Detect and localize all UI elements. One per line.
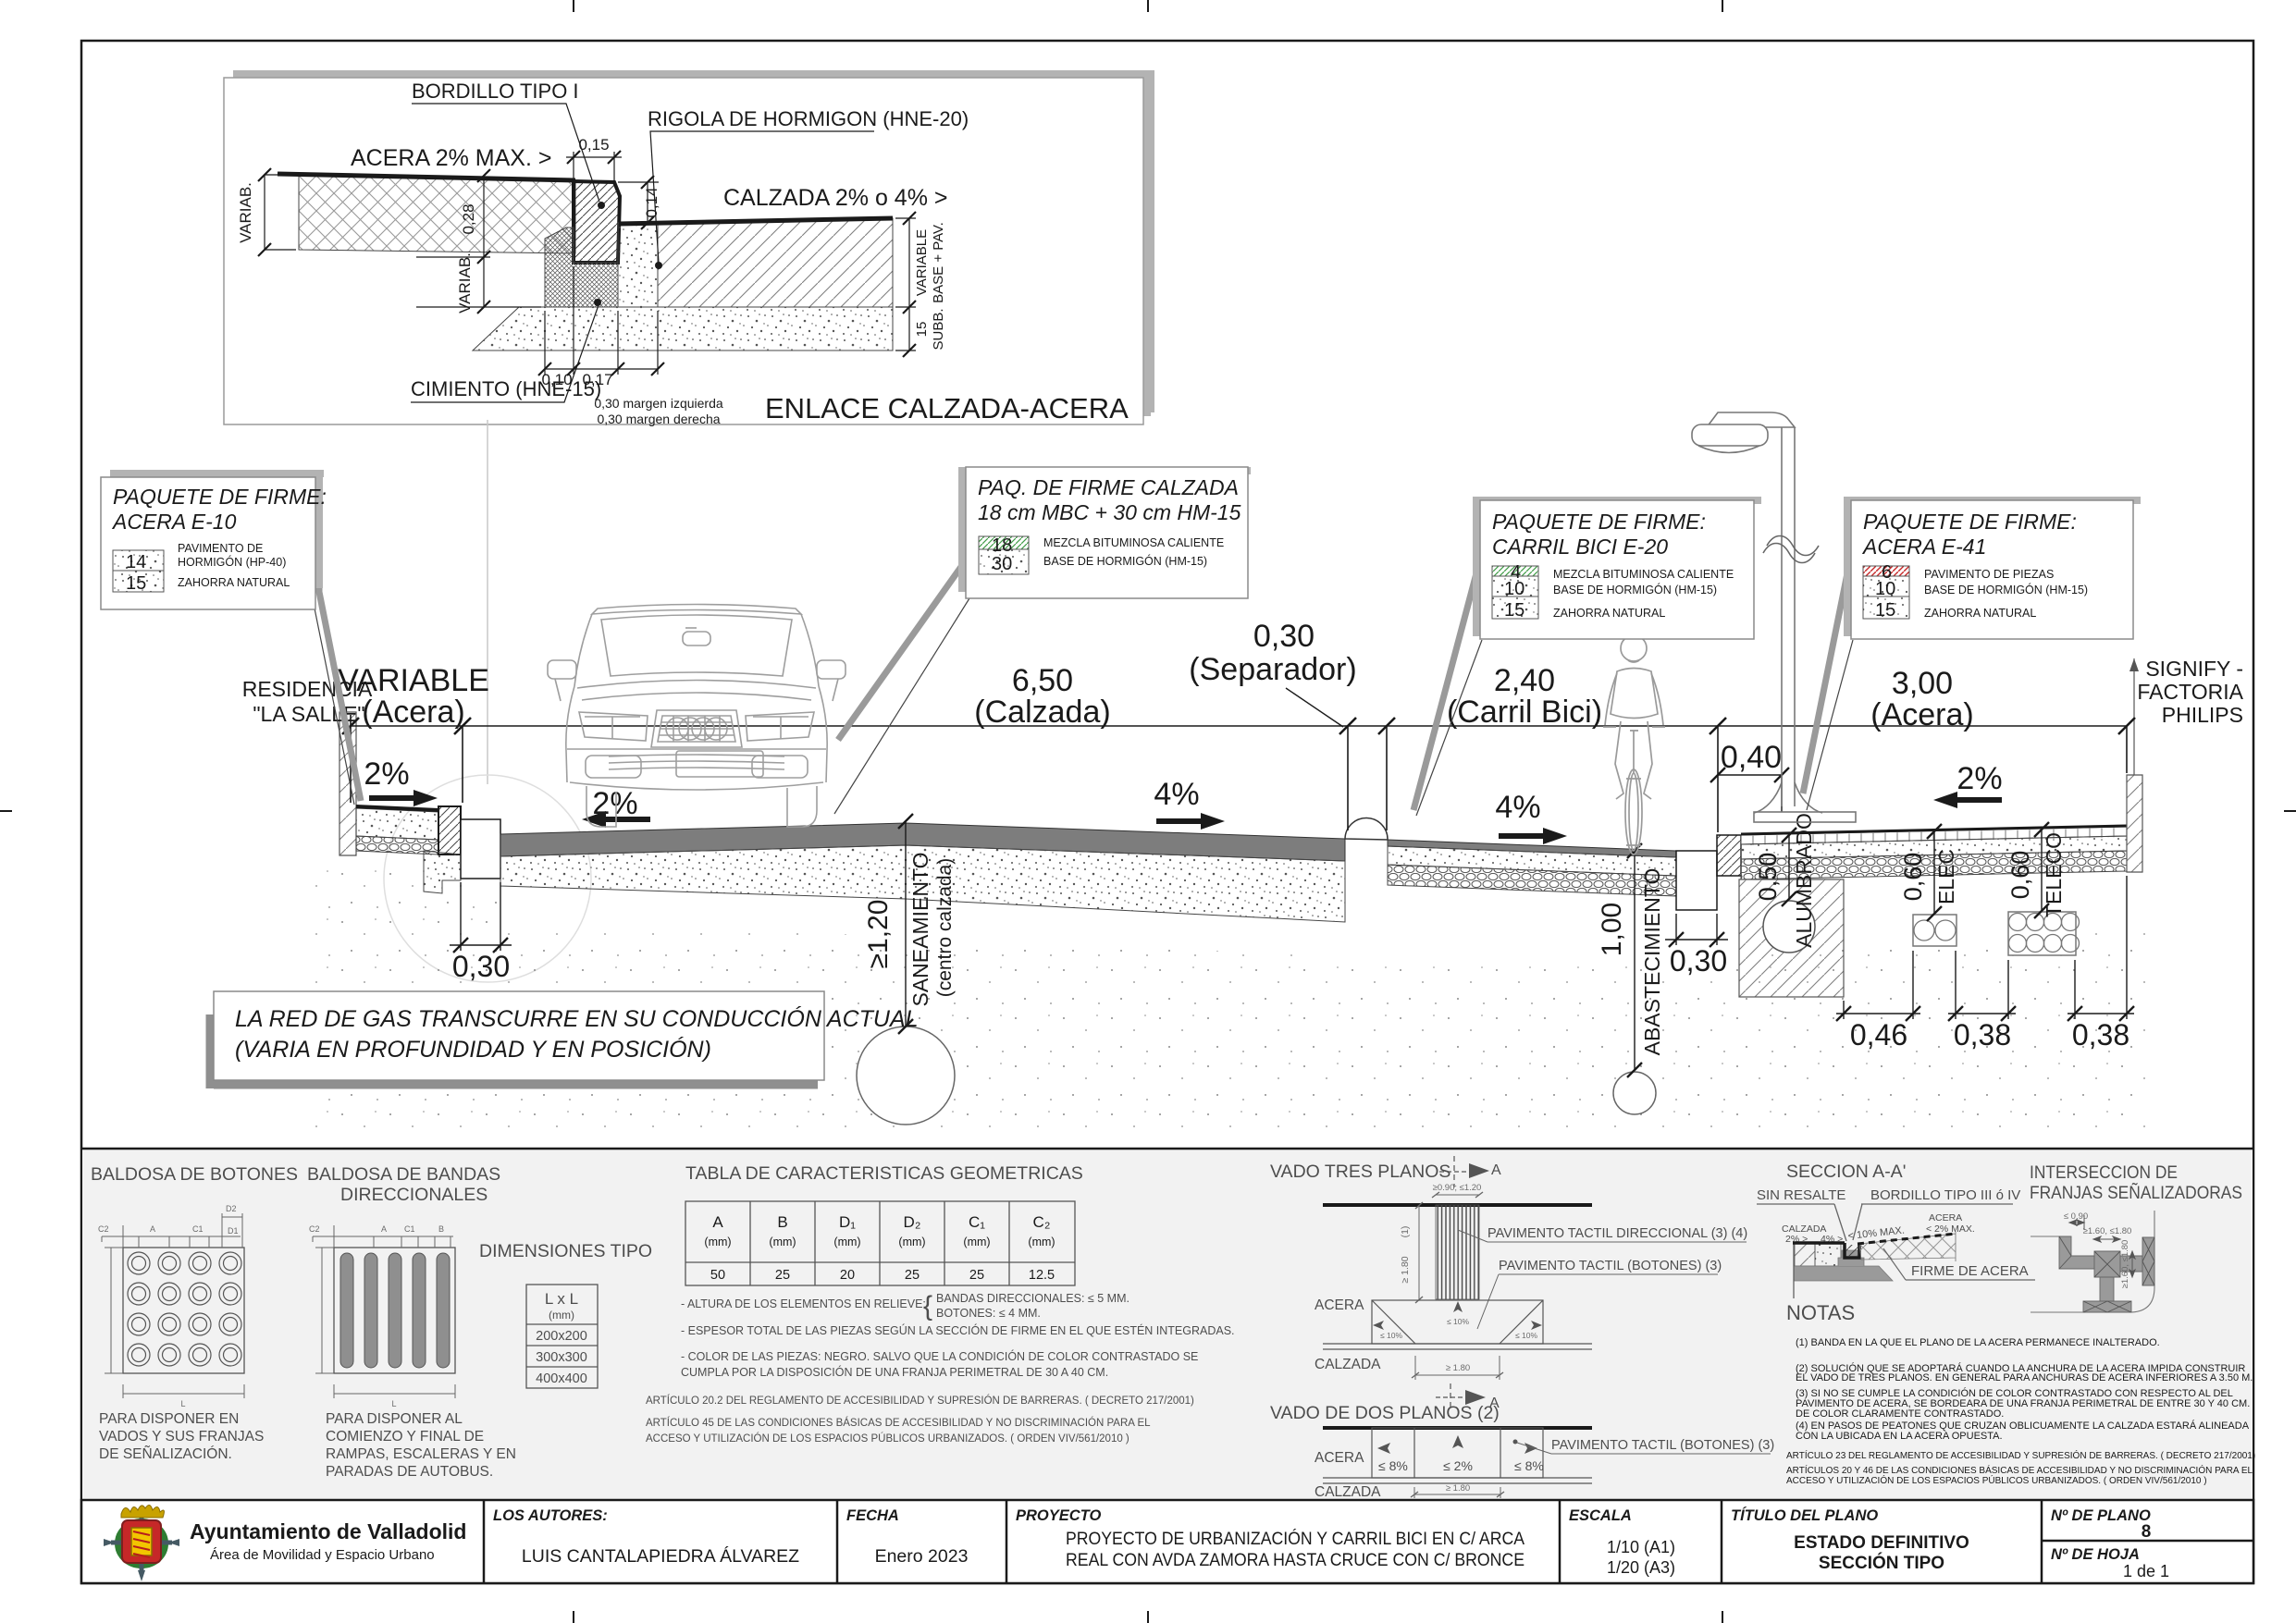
- svg-text:ELEC: ELEC: [1934, 849, 1958, 904]
- svg-text:15: 15: [914, 322, 930, 338]
- svg-text:DIRECCIONALES: DIRECCIONALES: [340, 1185, 488, 1205]
- svg-text:RAMPAS, ESCALERAS Y EN: RAMPAS, ESCALERAS Y EN: [326, 1446, 516, 1462]
- svg-text:PAVIMENTO TACTIL (BOTONES) (3): PAVIMENTO TACTIL (BOTONES) (3): [1551, 1438, 1774, 1453]
- svg-text:400x400: 400x400: [536, 1371, 587, 1386]
- svg-text:0,28: 0,28: [460, 203, 477, 234]
- svg-text:≥ 1.80: ≥ 1.80: [1446, 1483, 1470, 1494]
- svg-text:PHILIPS: PHILIPS: [2162, 703, 2243, 727]
- svg-text:Ayuntamiento de Valladolid: Ayuntamiento de Valladolid: [190, 1519, 466, 1543]
- svg-text:6,50: 6,50: [1012, 663, 1073, 698]
- svg-text:PAQ. DE FIRME CALZADA: PAQ. DE FIRME CALZADA: [978, 475, 1239, 499]
- svg-text:BASE + PAV.: BASE + PAV.: [931, 222, 946, 303]
- svg-text:0,60: 0,60: [2006, 851, 2034, 900]
- svg-text:≥ 1.80: ≥ 1.80: [1400, 1256, 1411, 1283]
- svg-text:PARA DISPONER AL: PARA DISPONER AL: [326, 1411, 463, 1427]
- svg-text:18 cm MBC + 30 cm HM-15: 18 cm MBC + 30 cm HM-15: [978, 500, 1241, 524]
- svg-text:COMIENZO Y FINAL DE: COMIENZO Y FINAL DE: [326, 1429, 484, 1445]
- svg-text:200x200: 200x200: [536, 1329, 587, 1344]
- svg-text:≤ 0.90: ≤ 0.90: [2064, 1211, 2088, 1222]
- svg-text:8: 8: [2142, 1522, 2152, 1542]
- svg-text:(1) BANDA EN LA QUE EL PLANO: (1) BANDA EN LA QUE EL PLANO DE LA ACERA…: [1796, 1337, 2160, 1348]
- svg-text:A: A: [712, 1213, 723, 1231]
- svg-text:ARTÍCULO 45 DE LAS CONDICIONES: ARTÍCULO 45 DE LAS CONDICIONES BÁSICAS D…: [646, 1417, 1151, 1429]
- svg-text:- COLOR DE LAS PIEZAS: NEGRO.: - COLOR DE LAS PIEZAS: NEGRO. SALVO QUE …: [681, 1349, 1198, 1363]
- svg-text:PARADAS DE AUTOBUS.: PARADAS DE AUTOBUS.: [326, 1464, 493, 1480]
- svg-text:L x L: L x L: [545, 1290, 578, 1308]
- svg-text:≤ 8%: ≤ 8%: [1514, 1458, 1544, 1473]
- svg-text:≤ 2%: ≤ 2%: [1443, 1458, 1473, 1473]
- svg-text:INTERSECCION DE: INTERSECCION DE: [2030, 1162, 2178, 1183]
- svg-text:RESIDENCIA: RESIDENCIA: [242, 677, 373, 701]
- svg-text:0,14: 0,14: [643, 187, 660, 217]
- svg-text:0,38: 0,38: [1954, 1018, 2011, 1051]
- svg-text:CON LA UBICADA EN LA ACERA OP: CON LA UBICADA EN LA ACERA OPUESTA.: [1796, 1431, 2003, 1442]
- svg-text:LOS AUTORES:: LOS AUTORES:: [493, 1507, 608, 1524]
- svg-text:30: 30: [992, 554, 1012, 574]
- svg-text:C₁: C₁: [969, 1213, 985, 1231]
- svg-text:Enero 2023: Enero 2023: [875, 1546, 969, 1567]
- svg-text:3,00: 3,00: [1892, 666, 1953, 701]
- svg-text:ZAHORRA NATURAL: ZAHORRA NATURAL: [178, 576, 290, 589]
- svg-text:RIGOLA DE HORMIGON (HNE-20): RIGOLA DE HORMIGON (HNE-20): [648, 107, 969, 130]
- svg-text:SIGNIFY -: SIGNIFY -: [2145, 657, 2243, 681]
- svg-text:SECCIÓN TIPO: SECCIÓN TIPO: [1819, 1553, 1944, 1573]
- svg-text:18: 18: [992, 535, 1012, 556]
- svg-text:BASE DE HORMIGÓN (HM-15): BASE DE HORMIGÓN (HM-15): [1924, 583, 2088, 596]
- svg-text:25: 25: [905, 1268, 920, 1283]
- svg-text:CALZADA: CALZADA: [1315, 1484, 1381, 1500]
- svg-text:C₂: C₂: [1033, 1213, 1051, 1231]
- svg-text:DE SEÑALIZACIÓN.: DE SEÑALIZACIÓN.: [99, 1446, 232, 1462]
- svg-text:10: 10: [1504, 579, 1524, 599]
- svg-text:15: 15: [1504, 600, 1524, 621]
- svg-text:20: 20: [840, 1268, 855, 1283]
- svg-text:2%: 2%: [1957, 761, 2002, 796]
- svg-text:ACCESO Y UTILIZACIÓN DE LOS ES: ACCESO Y UTILIZACIÓN DE LOS ESPACIOS PÚB…: [1786, 1474, 2207, 1486]
- svg-text:14: 14: [126, 552, 146, 572]
- svg-text:ARTÍCULO 23 DEL REGLAMENTO DE: ARTÍCULO 23 DEL REGLAMENTO DE ACCESIBILI…: [1786, 1449, 2255, 1461]
- svg-text:10: 10: [1875, 579, 1895, 599]
- svg-text:2,40: 2,40: [1494, 663, 1555, 698]
- svg-text:(Calzada): (Calzada): [974, 695, 1110, 730]
- svg-text:(centro calzada): (centro calzada): [934, 858, 956, 998]
- svg-text:VADO DE DOS PLANOS (2): VADO DE DOS PLANOS (2): [1270, 1403, 1500, 1423]
- svg-text:SANEAMIENTO: SANEAMIENTO: [908, 853, 932, 1007]
- svg-text:0,50: 0,50: [1754, 853, 1782, 902]
- svg-text:L: L: [180, 1399, 185, 1408]
- svg-text:(Acera): (Acera): [362, 695, 464, 730]
- svg-text:≤ 10%: ≤ 10%: [1380, 1331, 1402, 1340]
- svg-text:PAVIMENTO DE PIEZAS: PAVIMENTO DE PIEZAS: [1924, 568, 2054, 581]
- svg-text:CUMPLA POR LA DISPOSICIÓN DE U: CUMPLA POR LA DISPOSICIÓN DE UNA FRANJA …: [681, 1365, 1108, 1379]
- svg-text:ACERA E-10: ACERA E-10: [111, 510, 237, 534]
- svg-text:ACERA: ACERA: [1315, 1297, 1364, 1313]
- svg-text:15: 15: [126, 573, 146, 594]
- svg-text:≥0.90; ≤1.20: ≥0.90; ≤1.20: [1433, 1183, 1482, 1193]
- svg-text:ENLACE CALZADA-ACERA: ENLACE CALZADA-ACERA: [765, 392, 1129, 424]
- svg-text:BANDAS DIRECCIONALES: ≤ 5 MM.: BANDAS DIRECCIONALES: ≤ 5 MM.: [936, 1292, 1129, 1305]
- svg-text:ARTÍCULO 20.2 DEL REGLAMENTO D: ARTÍCULO 20.2 DEL REGLAMENTO DE ACCESIBI…: [646, 1395, 1194, 1407]
- svg-text:(mm): (mm): [963, 1236, 990, 1248]
- svg-text:LUIS CANTALAPIEDRA ÁLVAREZ: LUIS CANTALAPIEDRA ÁLVAREZ: [522, 1545, 799, 1567]
- svg-text:PAVIMENTO DE: PAVIMENTO DE: [178, 542, 263, 555]
- svg-text:(Separador): (Separador): [1189, 652, 1356, 687]
- svg-text:B: B: [438, 1224, 444, 1234]
- svg-text:NOTAS: NOTAS: [1786, 1301, 1855, 1324]
- svg-text:VADO TRES PLANOS: VADO TRES PLANOS: [1270, 1162, 1450, 1182]
- svg-text:B: B: [777, 1213, 787, 1231]
- svg-text:PROYECTO: PROYECTO: [1016, 1507, 1101, 1524]
- svg-text:15: 15: [1875, 600, 1895, 621]
- svg-text:C1: C1: [192, 1224, 204, 1234]
- svg-text:ZAHORRA NATURAL: ZAHORRA NATURAL: [1924, 607, 2036, 620]
- svg-text:DE COLOR CLARAMENTE CONTRASTAD: DE COLOR CLARAMENTE CONTRASTADO.: [1796, 1408, 2004, 1420]
- svg-text:ACCESO Y UTILIZACIÓN DE LOS ES: ACCESO Y UTILIZACIÓN DE LOS ESPACIOS PÚB…: [646, 1432, 1129, 1445]
- svg-text:A: A: [381, 1224, 387, 1234]
- svg-text:BASE DE HORMIGÓN (HM-15): BASE DE HORMIGÓN (HM-15): [1553, 583, 1717, 596]
- svg-text:ABASTECIMIENTO: ABASTECIMIENTO: [1640, 868, 1664, 1056]
- svg-text:Área de Movilidad y Espacio Ur: Área de Movilidad y Espacio Urbano: [210, 1547, 435, 1563]
- svg-text:L: L: [391, 1399, 396, 1408]
- svg-text:0,38: 0,38: [2072, 1018, 2129, 1051]
- svg-text:DIMENSIONES TIPO: DIMENSIONES TIPO: [479, 1241, 652, 1261]
- svg-text:0,30: 0,30: [1253, 619, 1315, 654]
- svg-text:SIN RESALTE: SIN RESALTE: [1757, 1187, 1845, 1203]
- svg-text:0,15: 0,15: [578, 136, 609, 154]
- svg-text:≤ 10%: ≤ 10%: [1447, 1317, 1469, 1326]
- svg-text:BALDOSA DE BANDAS: BALDOSA DE BANDAS: [307, 1164, 500, 1185]
- svg-text:SUBB.: SUBB.: [931, 308, 946, 350]
- svg-text:{: {: [923, 1291, 932, 1322]
- svg-text:(mm): (mm): [549, 1309, 574, 1322]
- svg-text:≤ 10%: ≤ 10%: [1515, 1331, 1537, 1340]
- svg-text:MEZCLA BITUMINOSA CALIENTE: MEZCLA BITUMINOSA CALIENTE: [1043, 536, 1224, 549]
- svg-text:A: A: [150, 1224, 155, 1234]
- svg-text:FECHA: FECHA: [846, 1507, 899, 1524]
- svg-text:ESTADO DEFINITIVO: ESTADO DEFINITIVO: [1794, 1533, 1969, 1553]
- svg-text:(VARIA EN PROFUNDIDAD Y EN POS: (VARIA EN PROFUNDIDAD Y EN POSICIÓN): [235, 1036, 711, 1063]
- svg-text:ACERA E-41: ACERA E-41: [1861, 535, 1986, 559]
- svg-text:50: 50: [710, 1268, 725, 1283]
- svg-text:0,30 margen izquierda: 0,30 margen izquierda: [594, 396, 723, 411]
- svg-text:FIRME DE ACERA: FIRME DE ACERA: [1911, 1263, 2029, 1279]
- svg-text:≥1.60, ≤1.80: ≥1.60, ≤1.80: [2083, 1226, 2132, 1236]
- svg-text:BORDILLO TIPO III ó IV: BORDILLO TIPO III ó IV: [1870, 1187, 2020, 1203]
- svg-text:- ESPESOR TOTAL DE LAS PIEZAS: - ESPESOR TOTAL DE LAS PIEZAS SEGÚN LA S…: [681, 1323, 1235, 1337]
- svg-text:PAVIMENTO TACTIL (BOTONES) (3): PAVIMENTO TACTIL (BOTONES) (3): [1499, 1259, 1722, 1273]
- svg-text:300x300: 300x300: [536, 1350, 587, 1365]
- svg-text:PAQUETE DE FIRME:: PAQUETE DE FIRME:: [1492, 510, 1706, 534]
- svg-text:0,40: 0,40: [1721, 740, 1782, 775]
- svg-text:MEZCLA BITUMINOSA CALIENTE: MEZCLA BITUMINOSA CALIENTE: [1553, 568, 1734, 581]
- svg-text:0,60: 0,60: [1899, 853, 1927, 902]
- svg-text:D₂: D₂: [904, 1213, 921, 1231]
- svg-text:ACERA: ACERA: [1929, 1212, 1962, 1223]
- svg-text:(1): (1): [1400, 1226, 1411, 1238]
- svg-text:0,30: 0,30: [452, 950, 510, 983]
- svg-text:≥1,20: ≥1,20: [863, 900, 894, 969]
- svg-text:TÍTULO DEL PLANO: TÍTULO DEL PLANO: [1731, 1506, 1878, 1524]
- svg-text:PAQUETE DE FIRME:: PAQUETE DE FIRME:: [1863, 510, 2077, 534]
- svg-text:REAL CON AVDA ZAMORA HASTA CRU: REAL CON AVDA ZAMORA HASTA CRUCE CON C/ …: [1066, 1550, 1524, 1570]
- svg-text:1/10 (A1): 1/10 (A1): [1607, 1538, 1675, 1556]
- svg-text:EL VADO DE TRES PLANOS. EN GEN: EL VADO DE TRES PLANOS. EN GENERAL PARA …: [1796, 1372, 2253, 1383]
- svg-text:Nº DE HOJA: Nº DE HOJA: [2051, 1546, 2140, 1563]
- svg-text:BOTONES: ≤ 4 MM.: BOTONES: ≤ 4 MM.: [936, 1307, 1041, 1320]
- svg-text:CARRIL BICI E-20: CARRIL BICI E-20: [1492, 535, 1668, 559]
- svg-text:ACERA: ACERA: [1315, 1450, 1364, 1466]
- svg-text:≥1.60, ≤1.80: ≥1.60, ≤1.80: [2120, 1240, 2130, 1289]
- svg-text:VARIAB.: VARIAB.: [456, 252, 474, 314]
- svg-text:PAVIMENTO TACTIL DIRECCIONAL (: PAVIMENTO TACTIL DIRECCIONAL (3) (4): [1487, 1226, 1747, 1241]
- svg-text:PROYECTO DE URBANIZACIÓN Y CAR: PROYECTO DE URBANIZACIÓN Y CARRIL BICI E…: [1066, 1528, 1524, 1549]
- svg-text:4%: 4%: [1154, 777, 1199, 812]
- svg-text:12.5: 12.5: [1029, 1268, 1055, 1283]
- svg-text:C2: C2: [309, 1224, 320, 1234]
- svg-text:(Carril Bici): (Carril Bici): [1447, 695, 1602, 730]
- svg-text:CALZADA 2% o 4% >: CALZADA 2% o 4% >: [723, 185, 947, 211]
- svg-text:(mm): (mm): [704, 1236, 731, 1248]
- svg-text:SECCION A-A': SECCION A-A': [1786, 1162, 1906, 1182]
- svg-text:1,00: 1,00: [1597, 903, 1627, 956]
- svg-text:BALDOSA DE BOTONES: BALDOSA DE BOTONES: [91, 1164, 298, 1185]
- svg-text:C1: C1: [404, 1224, 415, 1234]
- svg-text:VADOS Y SUS FRANJAS: VADOS Y SUS FRANJAS: [99, 1429, 264, 1445]
- svg-text:(mm): (mm): [898, 1236, 925, 1248]
- svg-text:FRANJAS SEÑALIZADORAS: FRANJAS SEÑALIZADORAS: [2030, 1181, 2242, 1203]
- svg-text:A: A: [1491, 1162, 1501, 1178]
- svg-text:TABLA DE CARACTERISTICAS GEOME: TABLA DE CARACTERISTICAS GEOMETRICAS: [685, 1163, 1083, 1184]
- svg-text:PARA DISPONER EN: PARA DISPONER EN: [99, 1411, 239, 1427]
- svg-text:TELECO: TELECO: [2042, 832, 2066, 917]
- svg-text:(mm): (mm): [1028, 1236, 1055, 1248]
- svg-text:(mm): (mm): [833, 1236, 860, 1248]
- svg-text:- ALTURA DE LOS ELEMENTOS EN R: - ALTURA DE LOS ELEMENTOS EN RELIEVE:: [681, 1297, 926, 1310]
- svg-text:ALUMBRADO: ALUMBRADO: [1792, 813, 1816, 948]
- svg-text:BASE DE HORMIGÓN (HM-15): BASE DE HORMIGÓN (HM-15): [1043, 554, 1207, 568]
- svg-text:2%: 2%: [364, 756, 409, 792]
- svg-text:C2: C2: [98, 1224, 109, 1234]
- svg-text:CALZADA: CALZADA: [1315, 1357, 1381, 1372]
- svg-text:25: 25: [775, 1268, 790, 1283]
- svg-text:0,30 margen derecha: 0,30 margen derecha: [597, 412, 720, 426]
- svg-text:4%: 4%: [1495, 790, 1540, 825]
- svg-text:ESCALA: ESCALA: [1569, 1507, 1632, 1524]
- svg-text:(mm): (mm): [769, 1236, 796, 1248]
- svg-text:≤ 8%: ≤ 8%: [1378, 1458, 1408, 1473]
- svg-text:(Acera): (Acera): [1870, 697, 1973, 732]
- svg-text:ARTÍCULOS 20 Y 46 DE LAS CONDI: ARTÍCULOS 20 Y 46 DE LAS CONDICIONES BÁS…: [1786, 1464, 2253, 1476]
- svg-text:ZAHORRA NATURAL: ZAHORRA NATURAL: [1553, 607, 1665, 620]
- svg-text:VARIABLE: VARIABLE: [914, 229, 930, 296]
- svg-text:Nº DE PLANO: Nº DE PLANO: [2051, 1507, 2151, 1524]
- svg-text:ACERA 2% MAX. >: ACERA 2% MAX. >: [351, 145, 551, 171]
- svg-text:0,46: 0,46: [1850, 1018, 1907, 1051]
- svg-text:LA RED DE GAS TRANSCURRE EN SU: LA RED DE GAS TRANSCURRE EN SU CONDUCCIÓ…: [235, 1005, 919, 1032]
- svg-text:1 de 1: 1 de 1: [2123, 1562, 2169, 1580]
- svg-text:HORMIGÓN (HP-40): HORMIGÓN (HP-40): [178, 555, 286, 569]
- svg-text:CIMIENTO (HNE-15): CIMIENTO (HNE-15): [411, 377, 601, 400]
- svg-text:FACTORIA: FACTORIA: [2137, 680, 2243, 704]
- svg-text:VARIAB.: VARIAB.: [237, 182, 254, 243]
- svg-text:D₁: D₁: [839, 1213, 856, 1231]
- svg-text:D1: D1: [228, 1226, 239, 1236]
- svg-text:0,30: 0,30: [1670, 944, 1727, 977]
- svg-text:25: 25: [969, 1268, 984, 1283]
- svg-text:D2: D2: [226, 1204, 237, 1213]
- svg-text:PAQUETE DE FIRME:: PAQUETE DE FIRME:: [113, 485, 327, 509]
- svg-text:≥ 1.80: ≥ 1.80: [1446, 1363, 1470, 1373]
- svg-text:1/20 (A3): 1/20 (A3): [1607, 1558, 1675, 1577]
- svg-text:BORDILLO TIPO I: BORDILLO TIPO I: [412, 80, 579, 103]
